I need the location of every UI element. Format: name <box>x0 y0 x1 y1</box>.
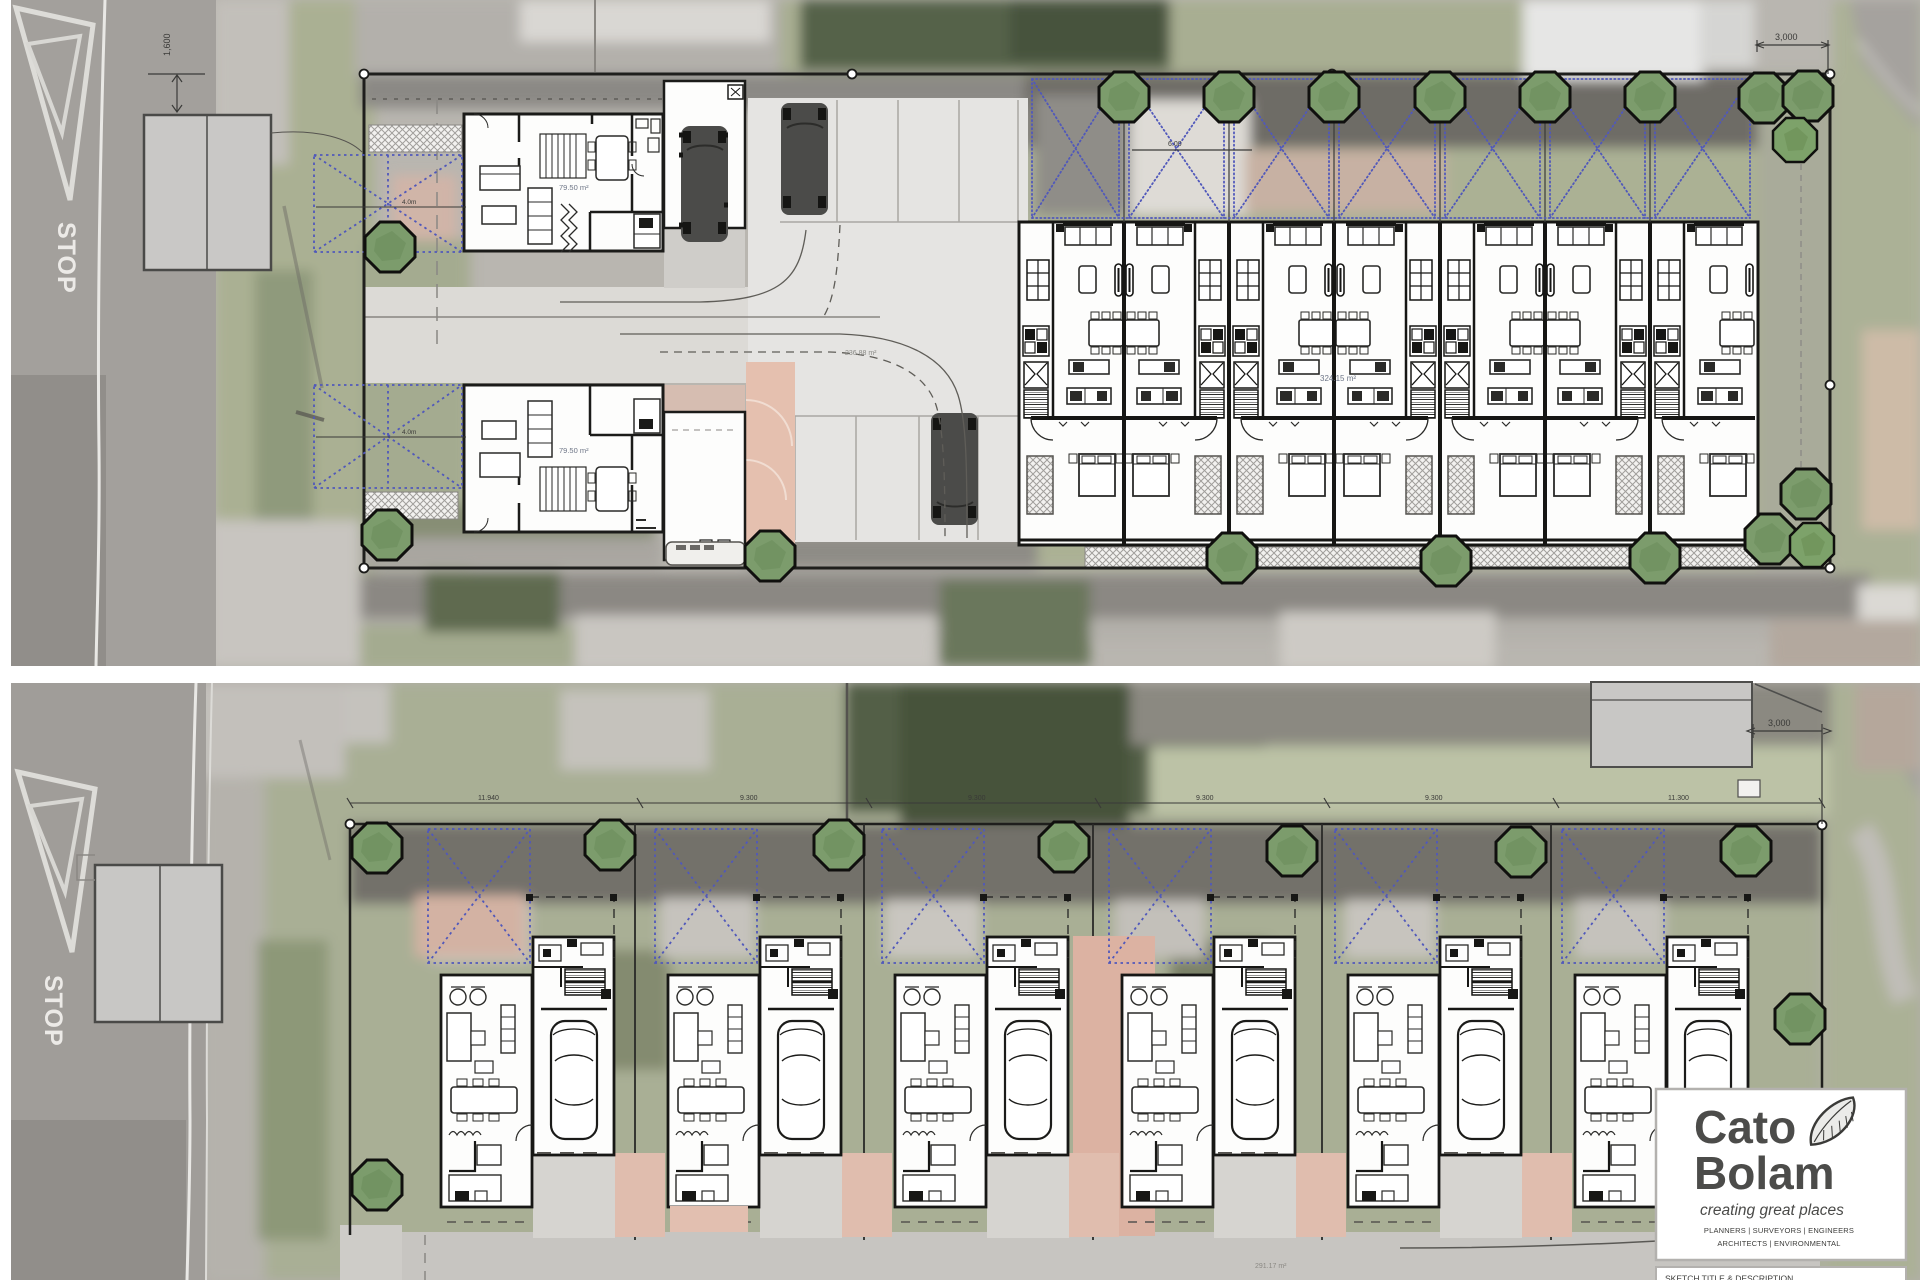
svg-text:9.300: 9.300 <box>1196 795 1214 802</box>
svg-text:Bolam: Bolam <box>1694 1147 1835 1199</box>
svg-text:236.88 m²: 236.88 m² <box>845 350 877 357</box>
svg-text:291.17 m²: 291.17 m² <box>1255 1263 1287 1270</box>
svg-text:4.0m: 4.0m <box>402 429 416 436</box>
svg-text:79.50 m²: 79.50 m² <box>559 183 589 192</box>
svg-text:creating great places: creating great places <box>1700 1202 1844 1219</box>
svg-text:STOP: STOP <box>52 222 80 294</box>
svg-text:324.15 m²: 324.15 m² <box>1320 374 1356 383</box>
svg-text:9.300: 9.300 <box>1425 795 1443 802</box>
svg-text:3,000: 3,000 <box>1768 718 1791 728</box>
svg-text:Cato: Cato <box>1694 1101 1796 1153</box>
svg-text:9.300: 9.300 <box>740 795 758 802</box>
svg-text:6.00: 6.00 <box>1168 141 1182 148</box>
svg-text:STOP: STOP <box>39 975 67 1047</box>
svg-text:11.940: 11.940 <box>478 795 499 802</box>
svg-text:4.0m: 4.0m <box>402 199 416 206</box>
svg-text:9.300: 9.300 <box>968 795 986 802</box>
svg-text:ARCHITECTS | ENVIRONMENTAL: ARCHITECTS | ENVIRONMENTAL <box>1717 1239 1840 1248</box>
svg-text:79.50 m²: 79.50 m² <box>559 446 589 455</box>
svg-text:1,600: 1,600 <box>162 33 172 56</box>
svg-text:3,000: 3,000 <box>1775 32 1798 42</box>
svg-text:PLANNERS | SURVEYORS | ENGI: PLANNERS | SURVEYORS | ENGINEERS <box>1704 1226 1854 1235</box>
svg-text:11.300: 11.300 <box>1668 795 1689 802</box>
svg-text:SKETCH TITLE & DESCRIPTION: SKETCH TITLE & DESCRIPTION <box>1665 1274 1793 1280</box>
